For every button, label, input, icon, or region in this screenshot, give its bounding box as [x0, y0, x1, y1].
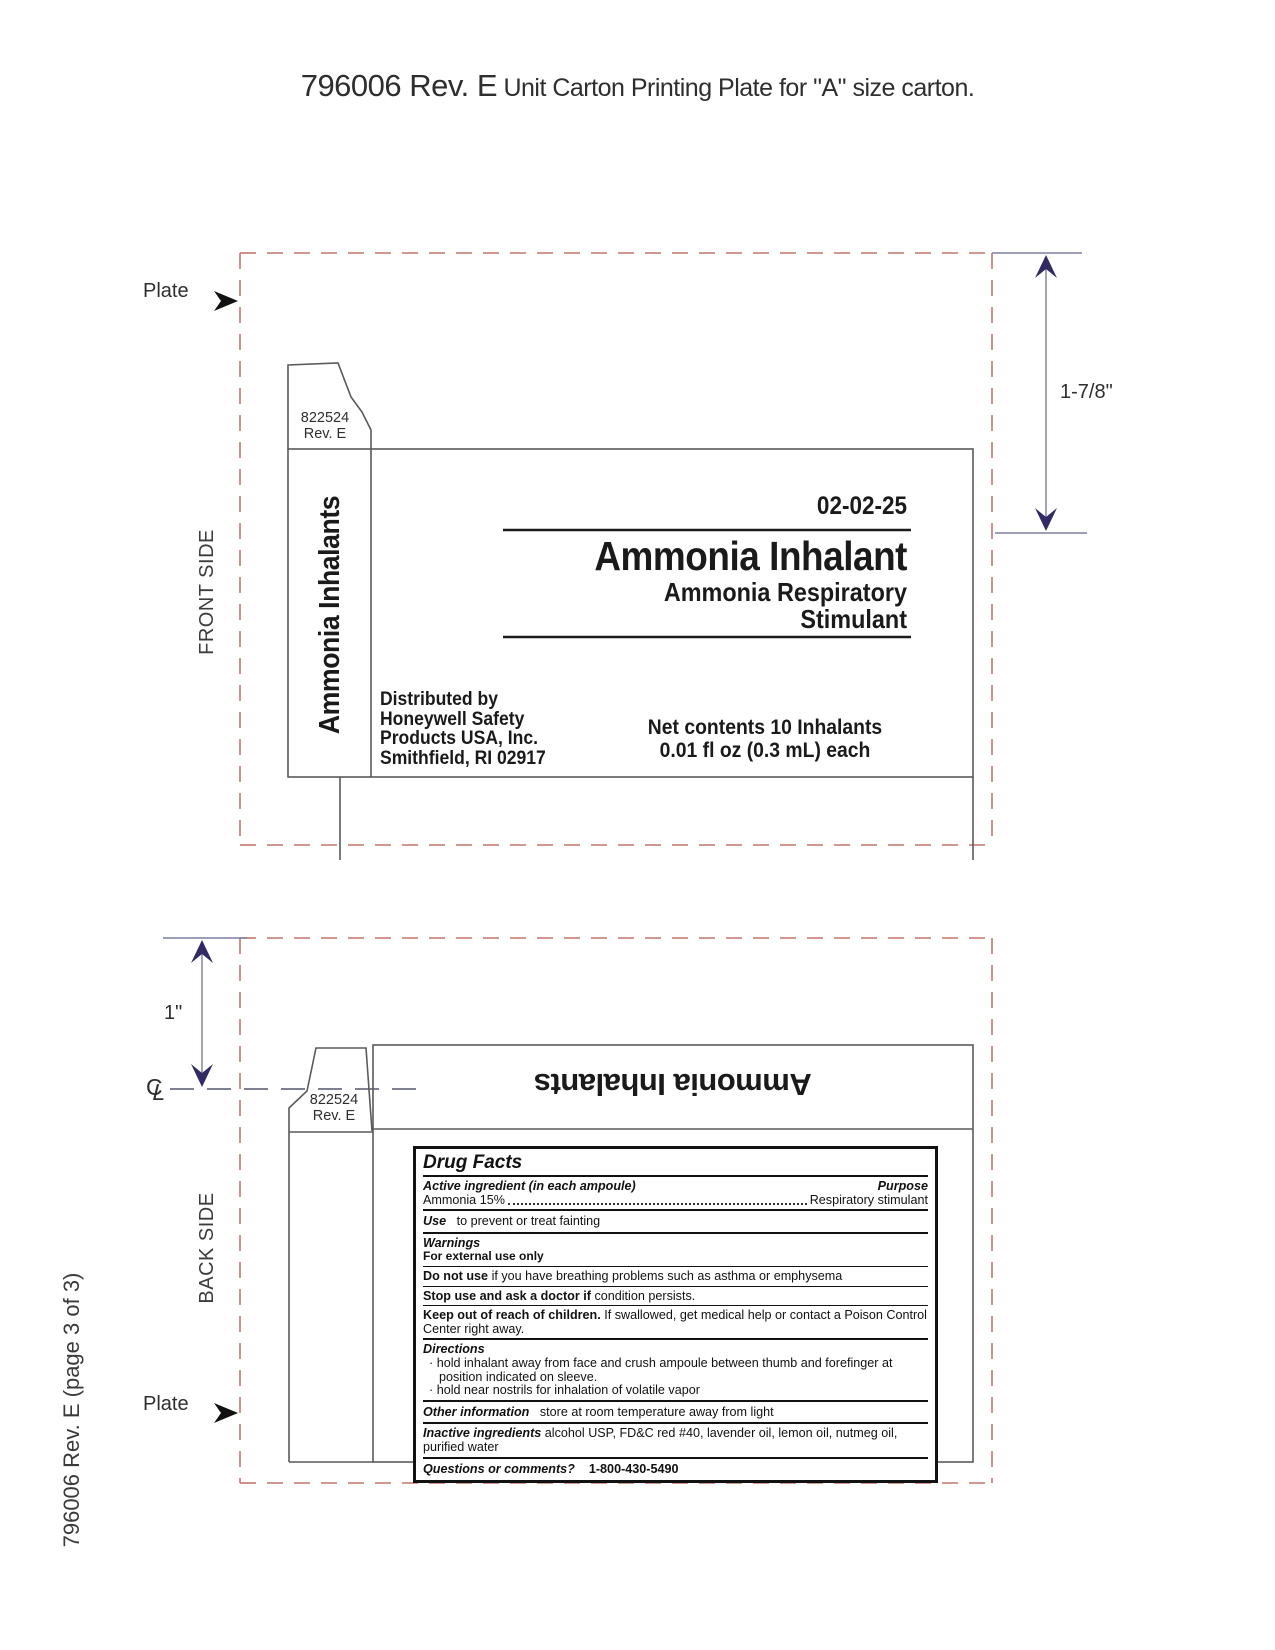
drug-facts-panel: Drug Facts Active ingredient (in each am… — [413, 1146, 938, 1483]
other-information-label: Other information — [423, 1405, 529, 1419]
directions-label: Directions — [423, 1343, 928, 1357]
bullet: · — [429, 1356, 433, 1370]
divider — [423, 1422, 928, 1424]
external-use-text: For external use only — [423, 1250, 928, 1264]
plate-number: 796006 Rev. E — [301, 68, 497, 103]
divider — [423, 1175, 928, 1177]
tab-revision: Rev. E — [288, 426, 362, 442]
active-ingredient-header-row: Active ingredient (in each ampoule) Purp… — [423, 1180, 928, 1194]
tab-part-number: 822524 — [296, 1092, 372, 1108]
purpose-value: Respiratory stimulant — [810, 1194, 928, 1208]
front-subtitle-line2: Stimulant — [541, 604, 907, 635]
distributor-line: Smithfield, RI 02917 — [380, 749, 546, 769]
directions-item: · hold inhalant away from face and crush… — [423, 1357, 928, 1384]
back-dimension-label: 1" — [164, 1002, 182, 1025]
back-tab-text: 822524 Rev. E — [296, 1092, 372, 1124]
keep-out-row: Keep out of reach of children. If swallo… — [423, 1309, 928, 1336]
bullet: · — [429, 1383, 433, 1397]
tab-part-number: 822524 — [288, 410, 362, 426]
front-tab-text: 822524 Rev. E — [288, 410, 362, 442]
stop-use-text: condition persists. — [591, 1289, 695, 1303]
net-contents-line1: Net contents 10 Inhalants — [630, 716, 900, 739]
do-not-use-text: if you have breathing problems such as a… — [488, 1269, 842, 1283]
divider — [423, 1305, 928, 1306]
divider — [423, 1209, 928, 1211]
back-plate-label: Plate — [143, 1393, 189, 1416]
stop-use-label: Stop use and ask a doctor if — [423, 1289, 591, 1303]
other-information-text: store at room temperature away from ligh… — [540, 1405, 774, 1419]
directions-item-text: hold inhalant away from face and crush a… — [437, 1356, 893, 1384]
warnings-label: Warnings — [423, 1237, 928, 1251]
do-not-use-row: Do not use if you have breathing problem… — [423, 1270, 928, 1284]
front-distributor-block: Distributed by Honeywell Safety Products… — [380, 690, 546, 768]
questions-section: Questions or comments? 1-800-430-5490 — [423, 1462, 928, 1478]
divider — [423, 1457, 928, 1459]
drug-facts-title: Drug Facts — [423, 1151, 928, 1173]
divider — [423, 1338, 928, 1340]
use-label: Use — [423, 1214, 446, 1228]
directions-item-text: hold near nostrils for inhalation of vol… — [437, 1383, 700, 1397]
directions-list: · hold inhalant away from face and crush… — [423, 1357, 928, 1398]
centerline-symbol: C L — [146, 1074, 172, 1104]
divider — [423, 1232, 928, 1234]
dot-leader — [508, 1194, 807, 1206]
use-text: to prevent or treat fainting — [457, 1214, 601, 1228]
stop-use-row: Stop use and ask a doctor if condition p… — [423, 1290, 928, 1304]
distributor-line: Products USA, Inc. — [380, 729, 546, 749]
net-contents-line2: 0.01 fl oz (0.3 mL) each — [630, 739, 900, 762]
document-title: 796006 Rev. E Unit Carton Printing Plate… — [0, 68, 1275, 104]
back-plate-arrow — [214, 1403, 238, 1423]
front-side-label: FRONT SIDE — [196, 527, 218, 657]
purpose-header: Purpose — [878, 1180, 928, 1194]
front-product-title: Ammonia Inhalant — [541, 533, 907, 580]
front-plate-label: Plate — [143, 280, 189, 303]
divider — [423, 1286, 928, 1287]
tab-revision: Rev. E — [296, 1108, 372, 1124]
keep-out-label: Keep out of reach of children. — [423, 1308, 601, 1322]
active-ingredient-header: Active ingredient (in each ampoule) — [423, 1180, 636, 1194]
printing-plate-proof-page: 796006 Rev. E Unit Carton Printing Plate… — [0, 0, 1275, 1650]
back-side-label: BACK SIDE — [196, 1188, 218, 1308]
front-date-code: 02-02-25 — [631, 492, 907, 521]
distributor-line: Distributed by — [380, 690, 546, 710]
front-dimension-label: 1-7/8" — [1060, 381, 1113, 404]
do-not-use-label: Do not use — [423, 1269, 488, 1283]
front-net-contents: Net contents 10 Inhalants 0.01 fl oz (0.… — [630, 716, 900, 762]
front-spine-title: Ammonia Inhalants — [313, 495, 347, 734]
divider — [423, 1400, 928, 1402]
front-plate-arrow — [214, 291, 238, 311]
divider — [423, 1266, 928, 1267]
active-ingredient-name: Ammonia 15% — [423, 1194, 505, 1208]
other-information-section: Other information store at room temperat… — [423, 1405, 928, 1421]
inactive-ingredients-label: Inactive ingredients — [423, 1426, 541, 1440]
use-section: Use to prevent or treat fainting — [423, 1214, 928, 1230]
plate-description: Unit Carton Printing Plate for "A" size … — [497, 74, 974, 102]
back-dimension-1in — [163, 938, 420, 1089]
directions-item: · hold near nostrils for inhalation of v… — [423, 1384, 928, 1398]
inactive-ingredients-section: Inactive ingredients alcohol USP, FD&C r… — [423, 1427, 928, 1454]
back-flipped-title: Ammonia Inhalants — [473, 1066, 873, 1102]
active-ingredient-row: Ammonia 15% Respiratory stimulant — [423, 1194, 928, 1208]
page-footer-vertical: 796006 Rev. E (page 3 of 3) — [60, 1250, 84, 1570]
questions-phone: 1-800-430-5490 — [589, 1462, 679, 1476]
questions-label: Questions or comments? — [423, 1462, 575, 1476]
